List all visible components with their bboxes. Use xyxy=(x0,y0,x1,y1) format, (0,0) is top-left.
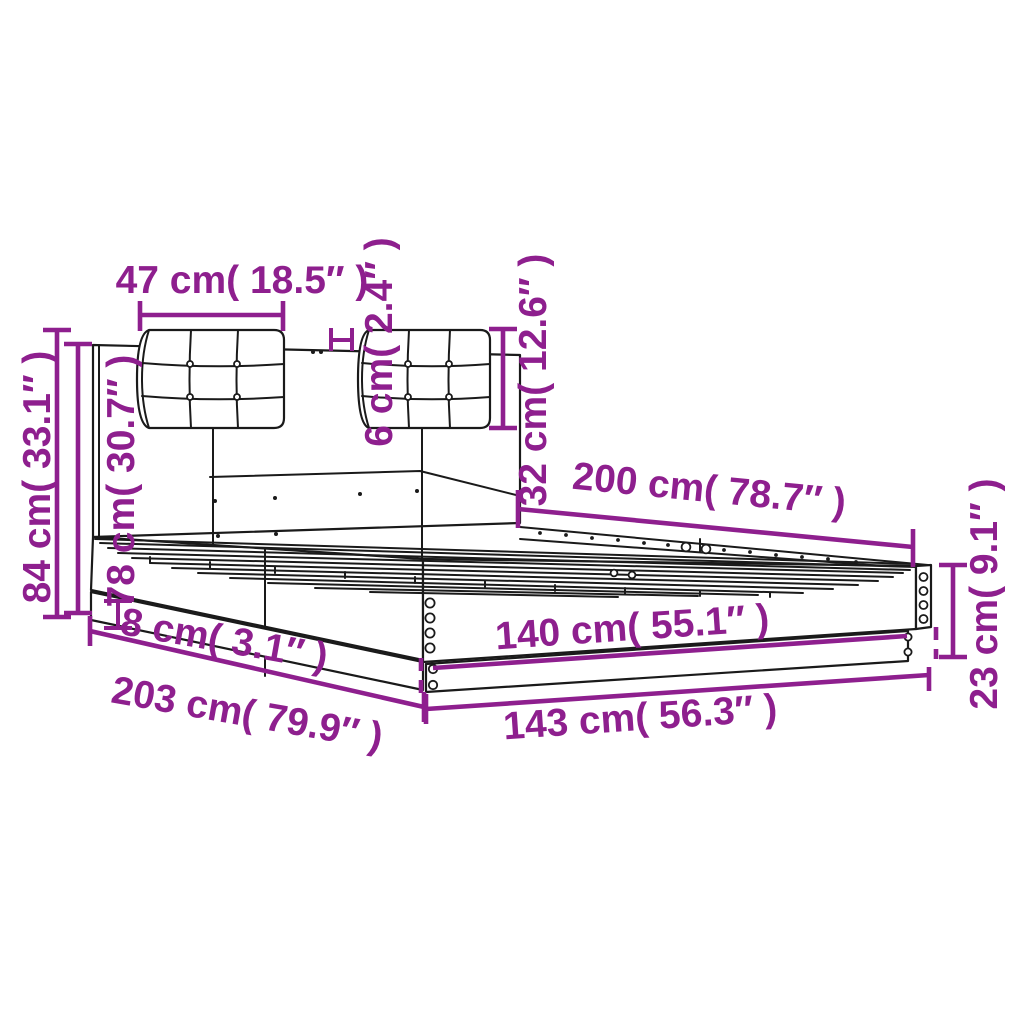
dim-label-headboard-height: 78 cm( 30.7″ ) xyxy=(100,355,143,608)
dim-label-total-length: 203 cm( 79.9″ ) xyxy=(108,669,386,759)
dim-cushion-width xyxy=(140,301,283,331)
dim-label-cushion-height: 32 cm( 12.6″ ) xyxy=(512,254,555,507)
dim-cushion-gap xyxy=(331,328,352,351)
far-rail-fitting-hole xyxy=(702,545,711,554)
dim-label-outer-width: 143 cm( 56.3″ ) xyxy=(502,687,779,749)
headboard-cushion-left xyxy=(137,330,284,428)
dim-label-total-height: 84 cm( 33.1″ ) xyxy=(16,351,59,604)
bed-dimension-drawing: 47 cm( 18.5″ ) 6 cm( 2.4″ ) 32 cm( 12.6″… xyxy=(0,0,1024,1024)
slat-fitting-hole xyxy=(611,570,618,577)
product-dimension-diagram: 47 cm( 18.5″ ) 6 cm( 2.4″ ) 32 cm( 12.6″… xyxy=(0,0,1024,1024)
slat-fitting-hole xyxy=(629,572,636,579)
dim-label-cushion-width: 47 cm( 18.5″ ) xyxy=(116,259,369,302)
dim-label-foot-height: 23 cm( 9.1″ ) xyxy=(963,478,1006,709)
dim-headboard-height xyxy=(64,344,92,613)
foot-end-cap xyxy=(916,565,931,629)
dim-label-cushion-gap: 6 cm( 2.4″ ) xyxy=(358,237,401,446)
far-rail-fitting-hole xyxy=(682,543,691,552)
dim-label-inner-length: 200 cm( 78.7″ ) xyxy=(571,455,848,525)
